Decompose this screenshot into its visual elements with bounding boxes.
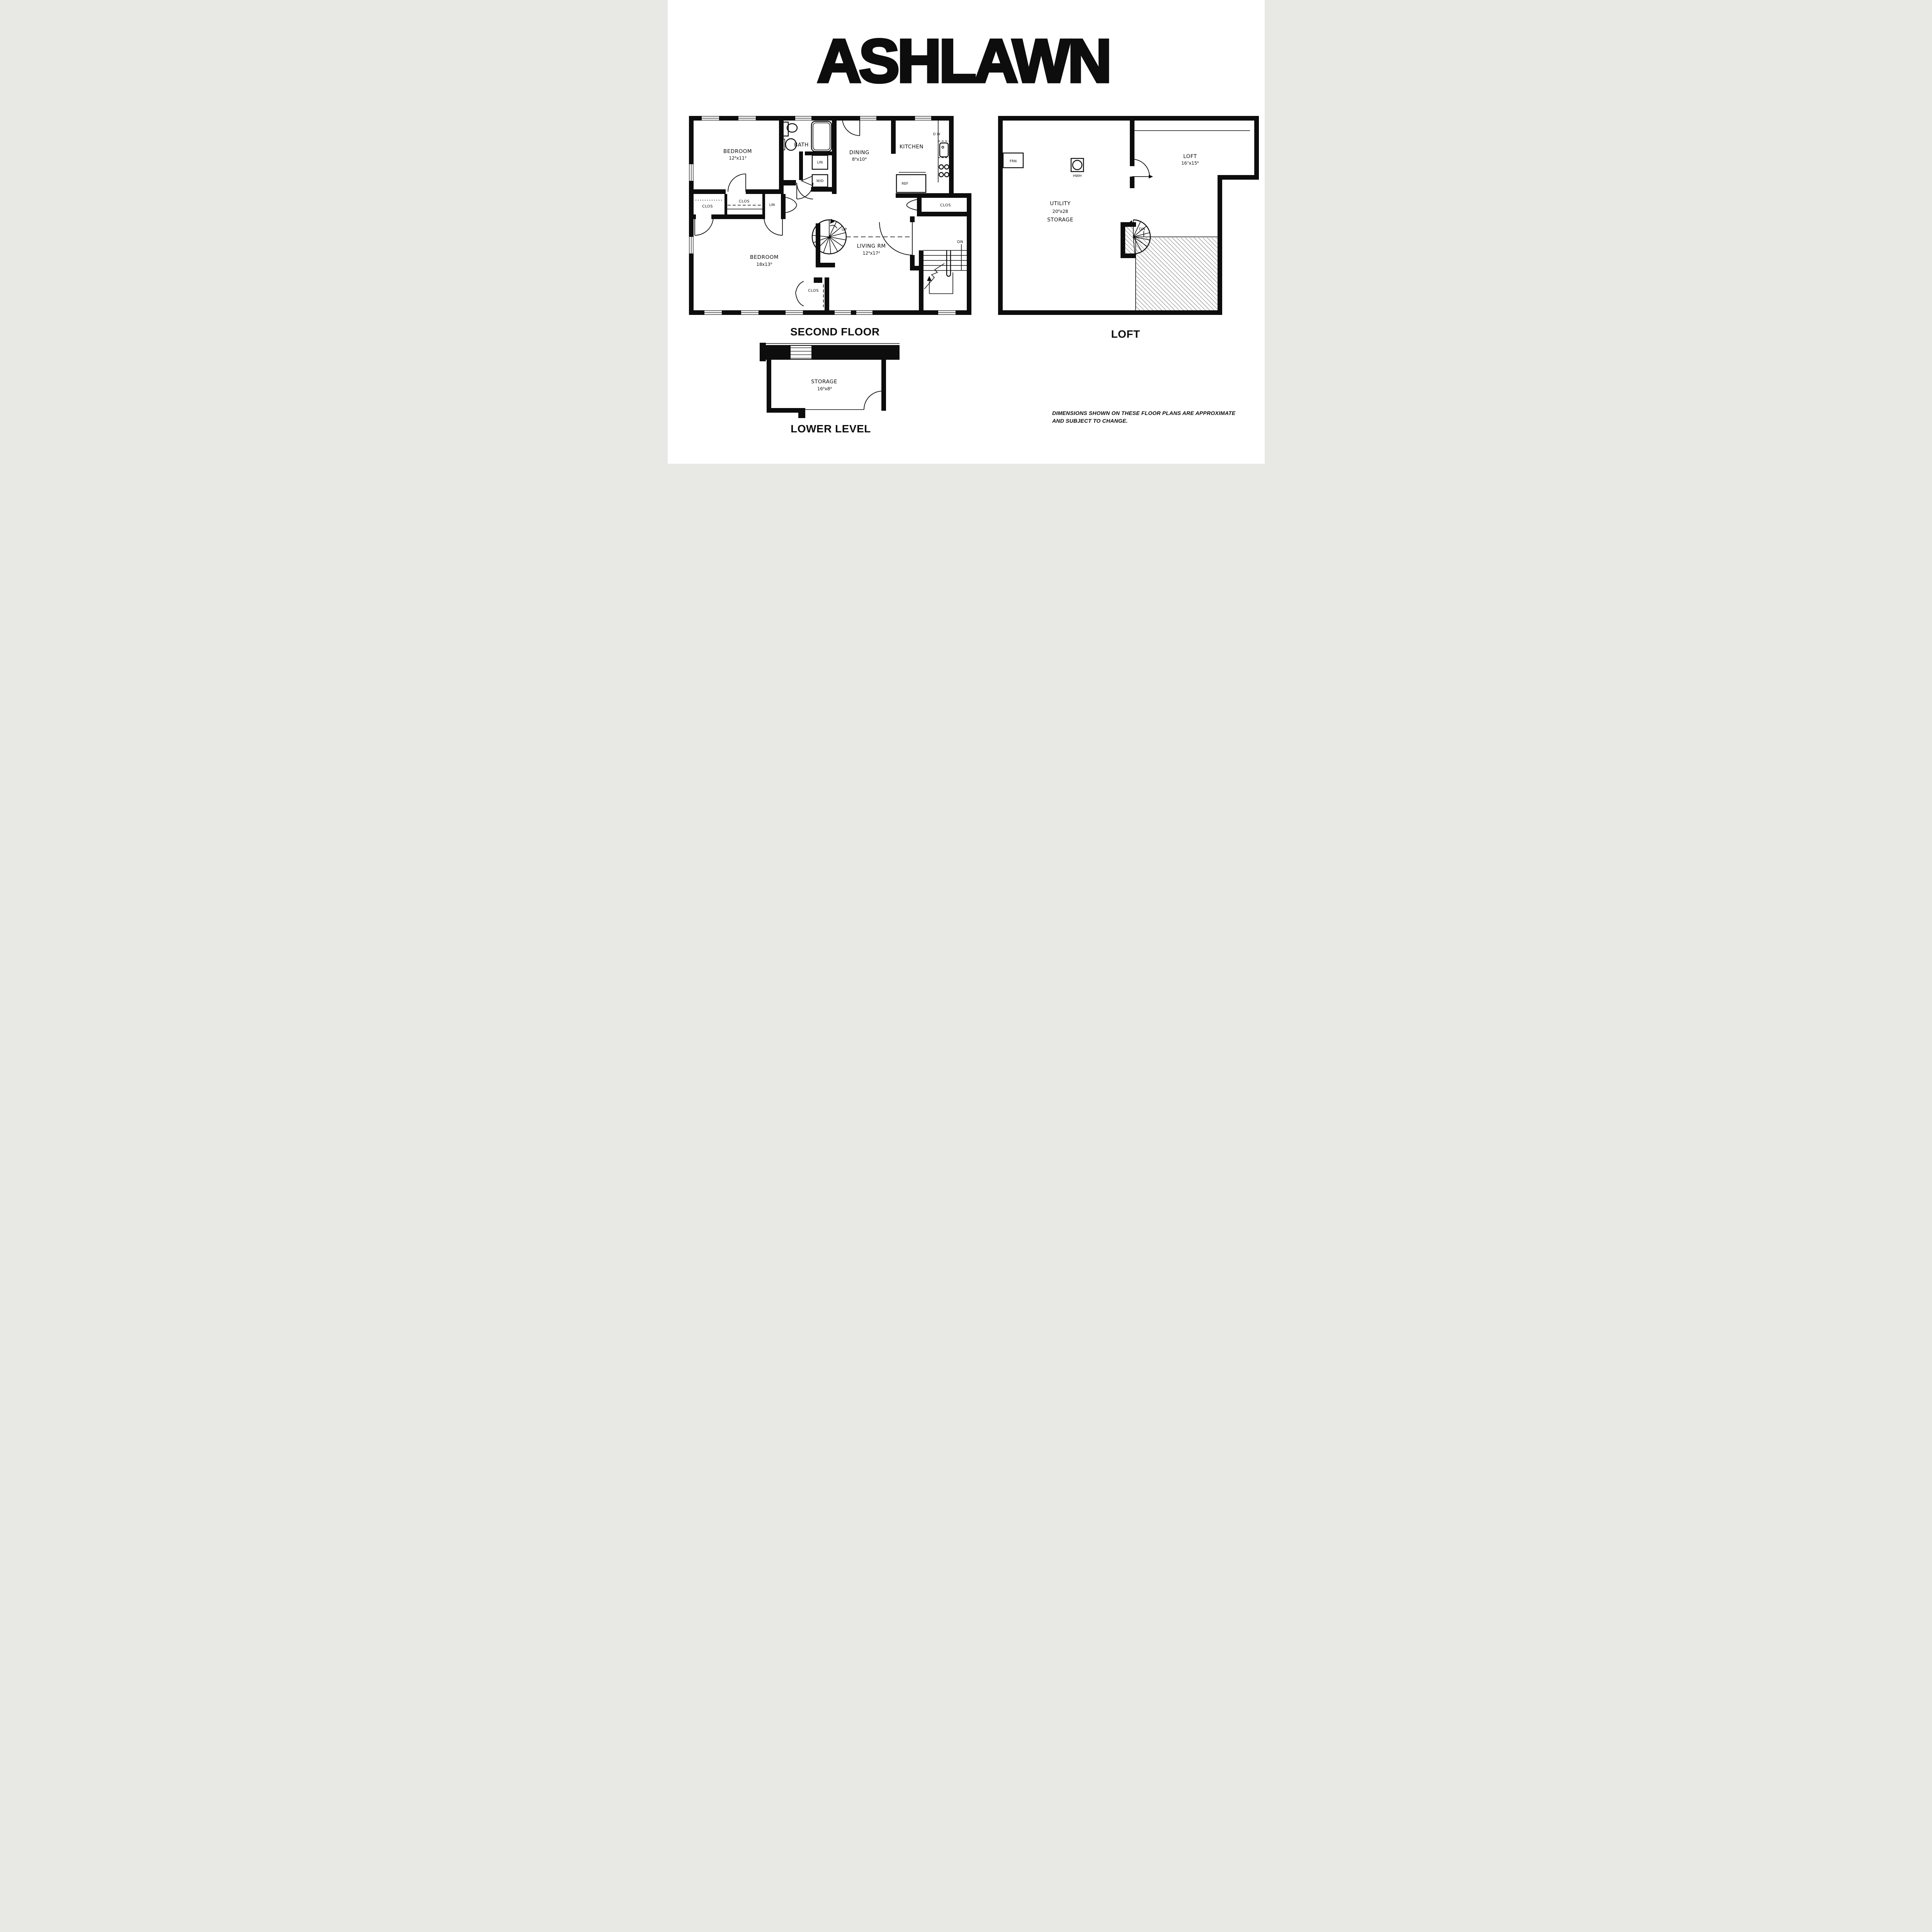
dining-label: DINING [849, 150, 869, 156]
note-line2: AND SUBJECT TO CHANGE. [1052, 418, 1128, 424]
stove-burners-icon [939, 165, 949, 177]
disclaimer-note: DIMENSIONS SHOWN ON THESE FLOOR PLANS AR… [1052, 410, 1236, 424]
storage-dims: 16⁶x8⁶ [817, 386, 832, 391]
water-heater-icon [1071, 158, 1083, 172]
linen-upper-label: LIN [817, 161, 822, 165]
floor-plan-sheet: ASHLAWN [668, 0, 1265, 464]
window-icon [704, 310, 722, 315]
door-arc-icon [784, 197, 797, 213]
window-icon [741, 310, 759, 315]
loft-dn-label: DN [1139, 227, 1145, 231]
second-floor-plan: BEDROOM 12⁶x11³ BATH LIN W/D DINING 8⁹x1… [689, 116, 971, 338]
window-icon [689, 237, 694, 253]
closet-door-arc-icon [796, 281, 804, 306]
living-label: LIVING RM [857, 243, 886, 249]
closet-bedroom2-label: CLOS [808, 289, 819, 293]
utility-dims: 20⁶x28 [1052, 209, 1068, 214]
bifold-door-icon [801, 176, 812, 185]
bathtub-icon [811, 121, 832, 151]
lower-level-title: LOWER LEVEL [791, 423, 871, 435]
second-floor-title: SECOND FLOOR [790, 326, 880, 338]
ashlawn-floor-plans: ASHLAWN [668, 0, 1265, 464]
door-arc-icon [864, 391, 883, 410]
water-heater-label: HWH [1073, 174, 1081, 178]
stair-direction-arrow [830, 219, 835, 224]
window-icon [795, 116, 811, 121]
bath-label: BATH [794, 142, 809, 148]
linen-mid-label: LIN [769, 203, 774, 207]
bedroom1-dims: 12⁶x11³ [729, 155, 747, 161]
loft-room-dims: 16⁷x15⁶ [1181, 160, 1199, 166]
washer-dryer-label: W/D [816, 179, 823, 183]
door-arc-icon [797, 183, 813, 199]
open-to-below-hatch [1125, 227, 1218, 310]
window-icon [786, 310, 803, 315]
stair-railing [947, 250, 951, 276]
staircase-down-icon [923, 244, 967, 294]
door-arc-icon [1132, 159, 1153, 179]
dn-label: DN [957, 240, 963, 244]
dishwasher-label: D W [933, 133, 940, 136]
note-line1: DIMENSIONS SHOWN ON THESE FLOOR PLANS AR… [1052, 410, 1236, 416]
dining-dims: 8⁹x10⁶ [852, 156, 867, 162]
window-icon [856, 310, 872, 315]
refrigerator-label: REF [901, 182, 908, 186]
stair-break-line [924, 264, 944, 289]
window-icon [738, 116, 756, 121]
door-arc-icon [728, 174, 746, 192]
window-icon [835, 310, 851, 315]
utility-label: UTILITY [1050, 201, 1071, 207]
window-icon [702, 116, 719, 121]
utility-storage-label: STORAGE [1047, 217, 1073, 223]
kitchen-sink-icon [940, 143, 948, 157]
entry-door-arc-icon [879, 222, 912, 255]
furnace-label: FRN [1009, 160, 1016, 163]
closet-entry-label: CLOS [940, 203, 951, 207]
stair-direction-arrow [927, 276, 932, 281]
loft-plan: FRN HWH UTILITY 20⁶x28 STORAGE LOFT 16⁷x… [998, 116, 1259, 340]
bedroom2-dims: 18x13⁹ [756, 262, 772, 267]
kitchen-label: KITCHEN [900, 144, 923, 150]
bedroom1-label: BEDROOM [723, 148, 752, 155]
up-label: UP [842, 228, 847, 232]
window-icon [915, 116, 931, 121]
bedroom2-label: BEDROOM [750, 254, 779, 260]
door-arc-icon [764, 217, 782, 235]
window-icon [860, 116, 876, 121]
lower-level-plan: STORAGE 16⁶x8⁶ LOWER LEVEL [760, 343, 900, 435]
window-icon [938, 310, 956, 315]
closet-mid-label: CLOS [739, 199, 750, 204]
window-icon [791, 346, 811, 359]
closet-left-label: CLOS [702, 204, 713, 209]
door-swing-arrow [1149, 175, 1153, 179]
refrigerator-box [896, 175, 926, 192]
door-arc-icon [842, 118, 860, 136]
loft-room-label: LOFT [1183, 153, 1197, 160]
loft-walls [998, 116, 1259, 315]
living-dims: 12⁶x17² [862, 250, 880, 256]
faucet-icon [942, 146, 944, 148]
sheet-title: ASHLAWN [817, 27, 1109, 95]
loft-title: LOFT [1111, 328, 1140, 340]
storage-label: STORAGE [811, 379, 837, 385]
door-arc-icon [695, 217, 713, 235]
window-icon [689, 164, 694, 181]
